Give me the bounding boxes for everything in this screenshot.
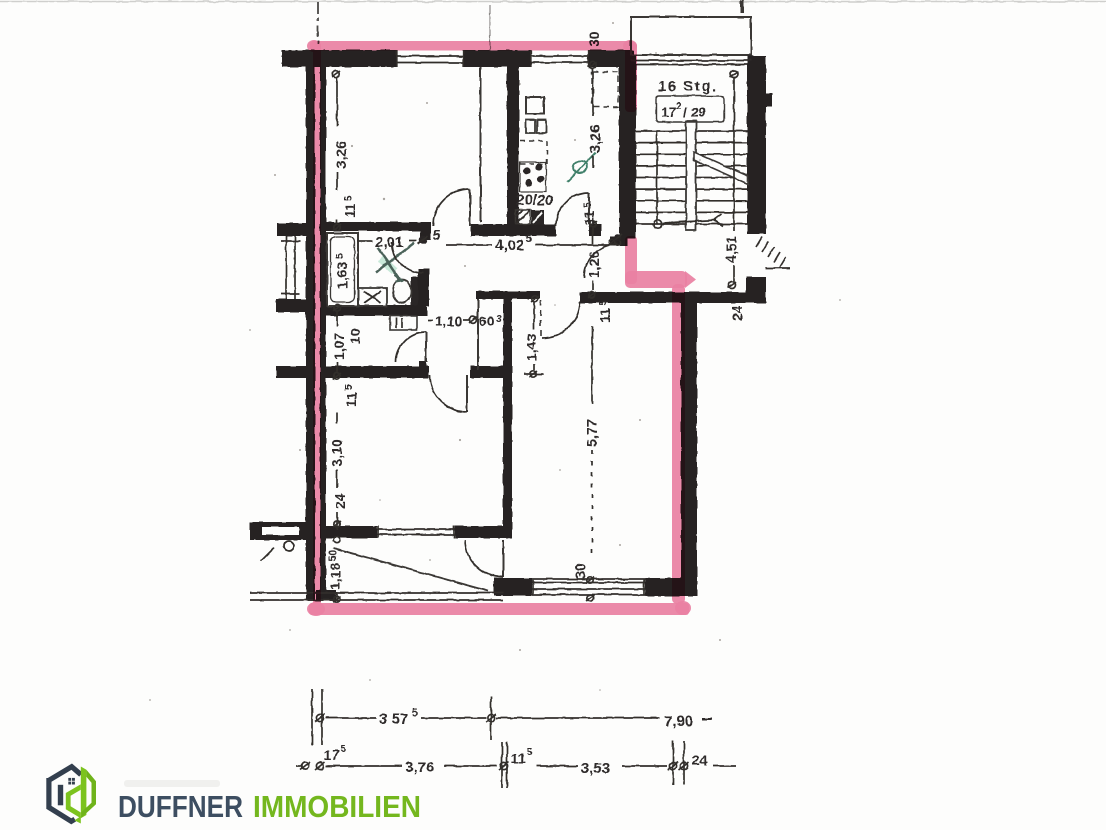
svg-text:3,53: 3,53 xyxy=(581,760,610,777)
svg-text:3,26: 3,26 xyxy=(588,125,604,153)
svg-text:DUFFNER: DUFFNER xyxy=(118,789,243,824)
svg-text:1,10: 1,10 xyxy=(435,313,462,329)
svg-text:11: 11 xyxy=(343,392,359,407)
svg-text:11: 11 xyxy=(342,203,358,218)
svg-text:5: 5 xyxy=(527,747,533,758)
svg-text:1,63: 1,63 xyxy=(334,262,350,289)
svg-text:1,26: 1,26 xyxy=(586,251,602,278)
svg-text:1,07: 1,07 xyxy=(331,333,347,360)
svg-text:3,26: 3,26 xyxy=(334,141,350,169)
svg-text:5: 5 xyxy=(598,300,609,306)
svg-text:16 Stg.: 16 Stg. xyxy=(658,78,718,95)
svg-text:11: 11 xyxy=(581,210,597,225)
svg-text:60: 60 xyxy=(479,313,495,329)
svg-text:11: 11 xyxy=(597,308,613,323)
svg-text:1,18: 1,18 xyxy=(327,563,343,590)
svg-text:/ 29: / 29 xyxy=(683,104,707,120)
svg-text:4,51: 4,51 xyxy=(723,236,739,263)
svg-text:5: 5 xyxy=(335,253,346,259)
svg-text:5: 5 xyxy=(343,195,354,201)
svg-text:4,02: 4,02 xyxy=(495,237,524,254)
svg-text:11: 11 xyxy=(511,750,526,766)
svg-text:50: 50 xyxy=(328,549,339,561)
svg-text:20/20: 20/20 xyxy=(516,192,554,209)
svg-text:IMMOBILIEN: IMMOBILIEN xyxy=(253,789,421,824)
svg-text:17: 17 xyxy=(661,104,677,120)
svg-text:3,10: 3,10 xyxy=(330,439,346,467)
svg-text:5,77: 5,77 xyxy=(585,419,601,447)
svg-text:1,43: 1,43 xyxy=(523,334,539,361)
svg-text:24: 24 xyxy=(729,305,745,321)
svg-text:5: 5 xyxy=(526,233,532,245)
svg-text:5: 5 xyxy=(582,202,593,208)
svg-text:17: 17 xyxy=(324,747,340,763)
svg-text:7,90: 7,90 xyxy=(664,713,693,730)
svg-text:30: 30 xyxy=(572,563,588,579)
svg-text:10: 10 xyxy=(347,328,363,344)
svg-text:5: 5 xyxy=(340,744,346,755)
svg-text:2,01: 2,01 xyxy=(375,235,403,251)
svg-text:3 57: 3 57 xyxy=(379,711,408,728)
svg-text:2: 2 xyxy=(676,101,682,112)
svg-text:5: 5 xyxy=(412,707,418,719)
svg-text:5: 5 xyxy=(344,384,355,390)
svg-text:3,76: 3,76 xyxy=(405,759,434,776)
svg-text:24: 24 xyxy=(332,493,348,509)
svg-text:24: 24 xyxy=(692,752,708,768)
svg-text:3: 3 xyxy=(496,314,502,325)
svg-text:5: 5 xyxy=(433,227,441,243)
